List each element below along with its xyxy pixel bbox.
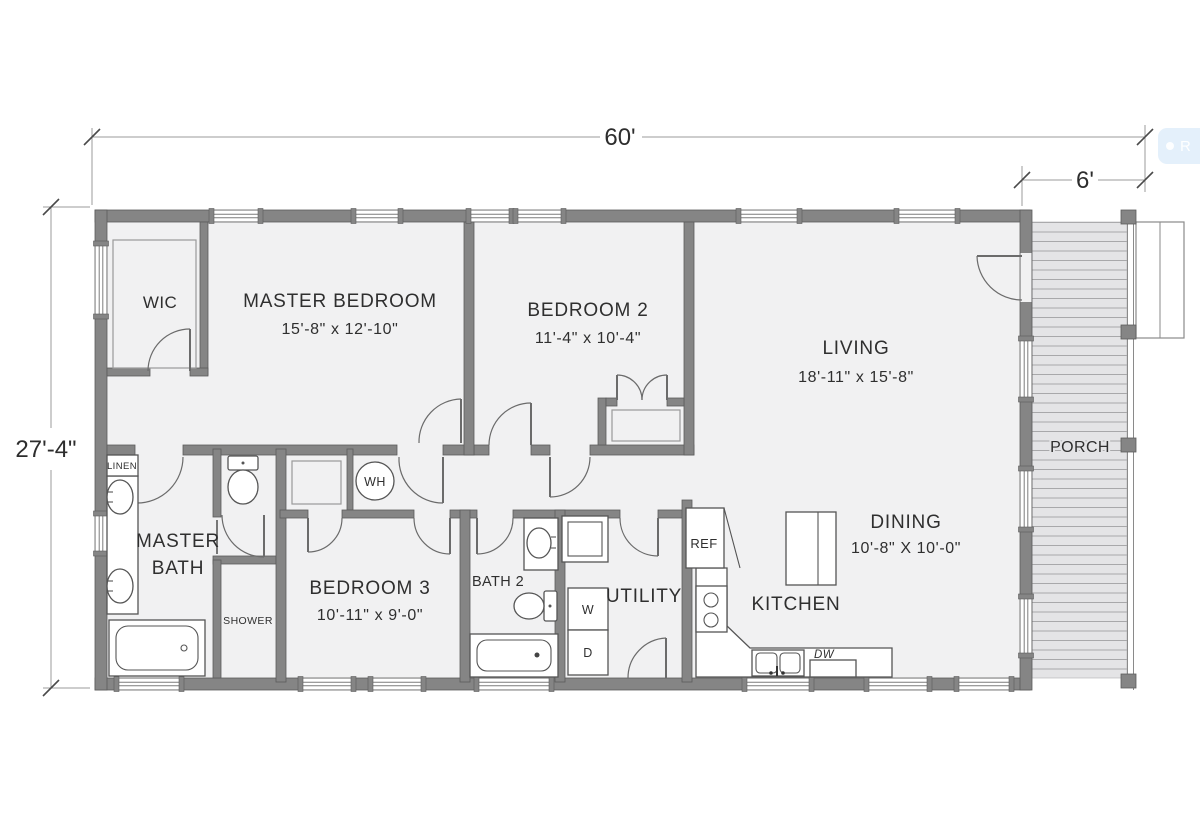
window bbox=[513, 209, 566, 224]
bedroom2-label: BEDROOM 2 bbox=[527, 300, 648, 321]
window bbox=[736, 209, 802, 224]
window bbox=[1019, 336, 1034, 402]
living-size: 18'-11" x 15'-8" bbox=[798, 369, 914, 386]
wic-label: WIC bbox=[143, 293, 177, 312]
washer-label: W bbox=[582, 603, 594, 617]
sink bbox=[107, 569, 133, 603]
bedroom3-size: 10'-11" x 9'-0" bbox=[317, 607, 423, 624]
utility-sink bbox=[562, 516, 608, 562]
bathtub bbox=[109, 620, 205, 676]
window bbox=[864, 677, 932, 692]
dining-label: DINING bbox=[870, 512, 941, 533]
dishwasher bbox=[810, 660, 856, 677]
master-bath-label-line2: BATH bbox=[152, 558, 204, 579]
overall-depth-dimension: 27'-4" bbox=[15, 436, 76, 463]
window bbox=[954, 677, 1014, 692]
front-door-opening bbox=[1021, 253, 1032, 302]
master-bedroom-size: 15'-8" x 12'-10" bbox=[282, 321, 399, 338]
window bbox=[114, 677, 184, 692]
refrigerator-label: REF bbox=[690, 536, 717, 551]
window bbox=[94, 241, 109, 319]
window bbox=[298, 677, 356, 692]
bath2-label: BATH 2 bbox=[472, 574, 524, 590]
window bbox=[474, 677, 554, 692]
window bbox=[351, 209, 403, 224]
dining-size: 10'-8" X 10'-0" bbox=[851, 540, 961, 557]
window bbox=[466, 209, 514, 224]
living-label: LIVING bbox=[822, 338, 889, 359]
window bbox=[742, 677, 814, 692]
porch-post bbox=[1121, 325, 1136, 339]
window bbox=[94, 511, 109, 556]
overall-width-dimension: 60' bbox=[604, 124, 635, 151]
master-bedroom-label: MASTER BEDROOM bbox=[243, 291, 437, 312]
kitchen-label: KITCHEN bbox=[752, 594, 841, 615]
window bbox=[1019, 594, 1034, 658]
porch-width-dimension: 6' bbox=[1076, 167, 1094, 194]
water-heater-label: WH bbox=[364, 475, 386, 489]
bedroom2-size: 11'-4" x 10'-4" bbox=[535, 330, 641, 347]
overlay-button-label: R bbox=[1180, 138, 1191, 155]
linen-label: LINEN bbox=[107, 461, 137, 472]
kitchen-island bbox=[786, 512, 836, 585]
porch-post bbox=[1121, 210, 1136, 224]
shower-label: SHOWER bbox=[223, 615, 273, 627]
overlay-button-dot-icon bbox=[1166, 142, 1174, 150]
porch-post bbox=[1121, 674, 1136, 688]
utility-label: UTILITY bbox=[606, 586, 682, 607]
porch-post bbox=[1121, 438, 1136, 452]
window bbox=[368, 677, 426, 692]
sink bbox=[107, 480, 133, 514]
window bbox=[1019, 466, 1034, 532]
bedroom3-label: BEDROOM 3 bbox=[309, 578, 430, 599]
dishwasher-label: DW bbox=[814, 649, 835, 661]
dryer-label: D bbox=[583, 646, 592, 660]
window bbox=[209, 209, 263, 224]
floor-plan-drawing: 60' 6' 27'-4" WIC MASTER BEDROOM 15'-8" … bbox=[0, 0, 1200, 818]
porch-label: PORCH bbox=[1050, 439, 1110, 456]
master-bath-label-line1: MASTER bbox=[136, 531, 220, 552]
floor-plan-page: 60' 6' 27'-4" WIC MASTER BEDROOM 15'-8" … bbox=[0, 0, 1200, 818]
window bbox=[894, 209, 960, 224]
sink bbox=[527, 528, 551, 558]
porch-structure bbox=[1121, 210, 1184, 690]
cropped-overlay-button[interactable]: R bbox=[1158, 128, 1200, 164]
